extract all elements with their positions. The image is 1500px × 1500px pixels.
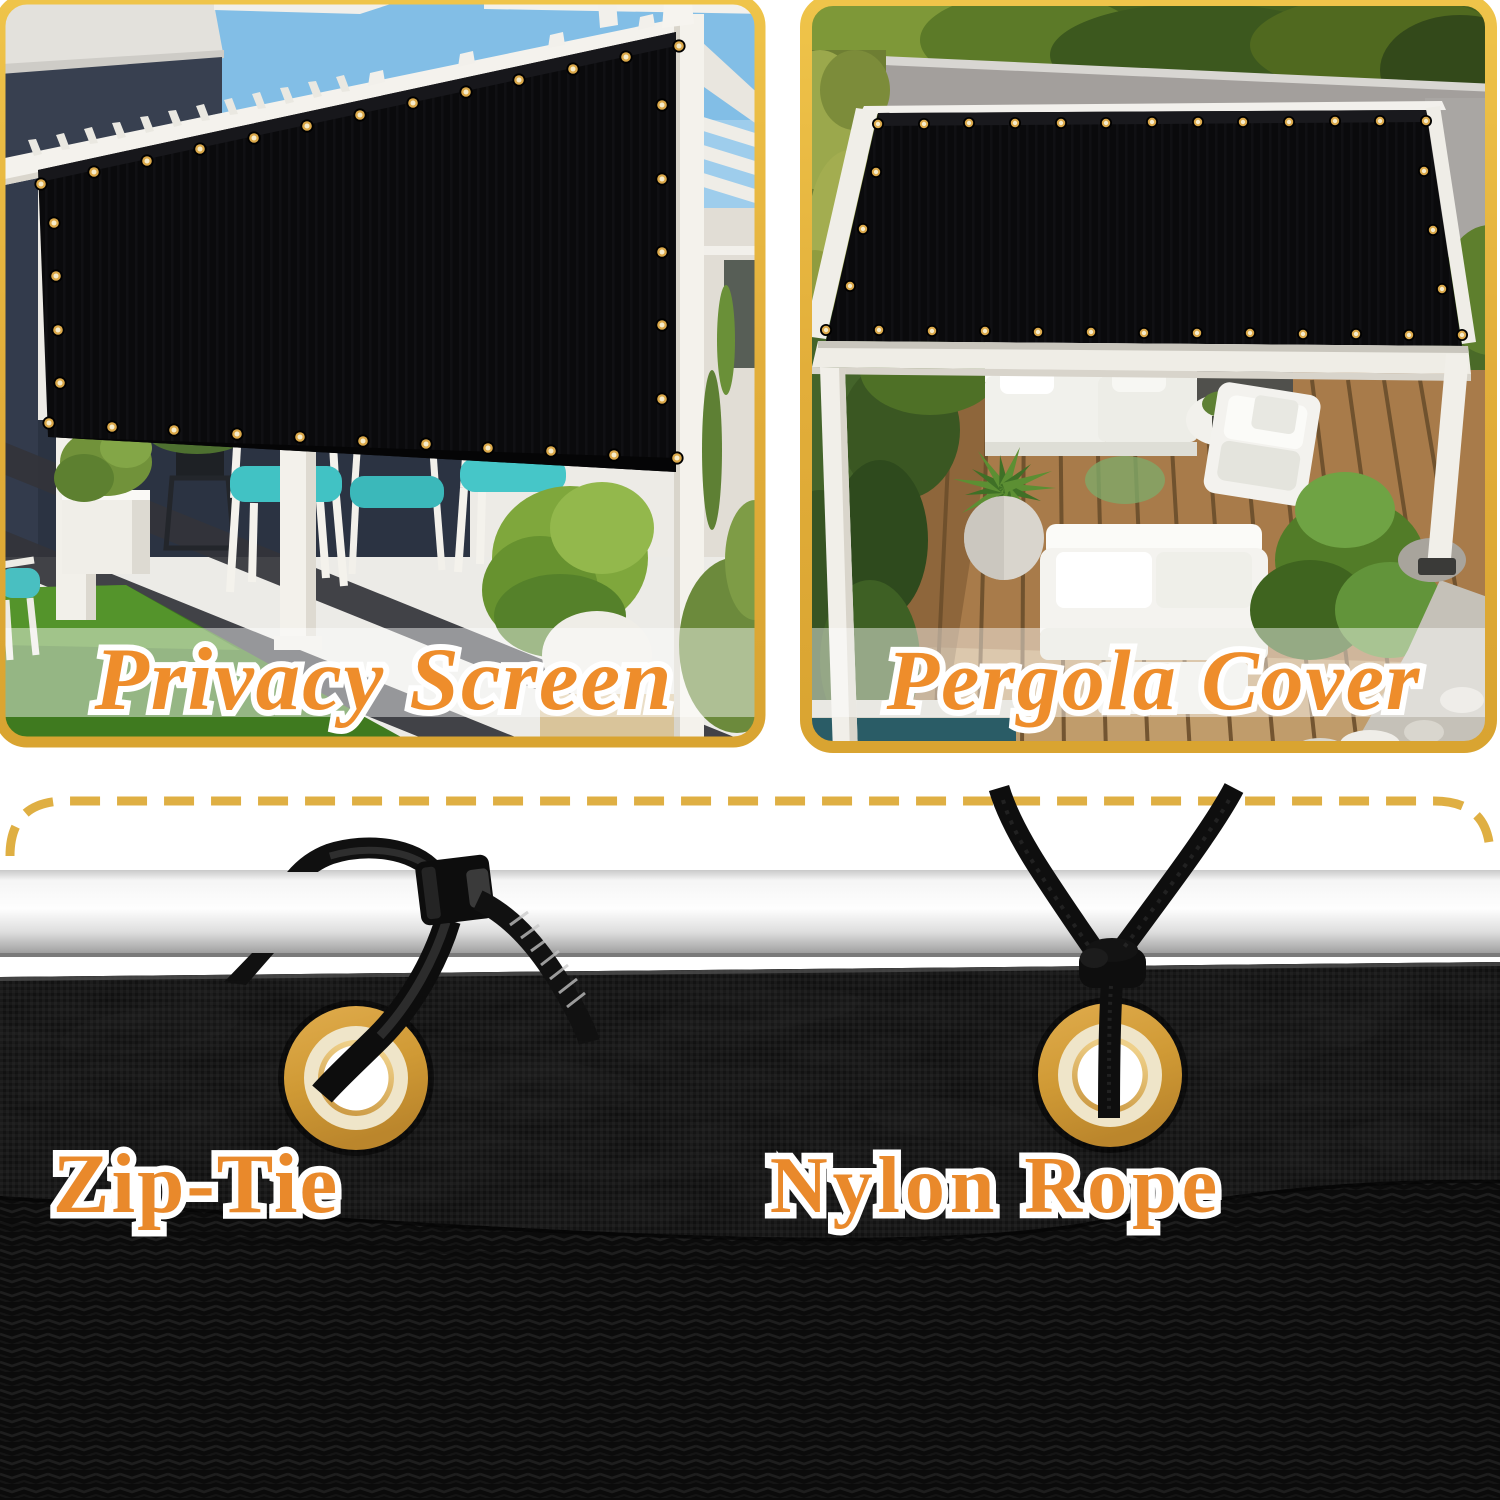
svg-text:Privacy Screen: Privacy Screen xyxy=(93,631,673,729)
svg-text:Pergola Cover: Pergola Cover xyxy=(886,632,1422,728)
svg-text:Nylon Rope: Nylon Rope xyxy=(770,1142,1222,1230)
svg-text:Zip-Tie: Zip-Tie xyxy=(53,1137,339,1231)
